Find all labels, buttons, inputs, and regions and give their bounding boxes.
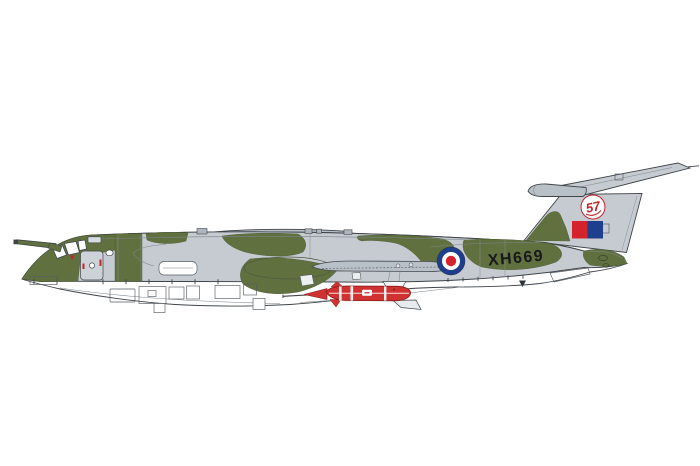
tailplane-tip-probe [688,166,699,167]
flap-fairing-2 [352,273,361,280]
open-hatch-1 [154,304,165,313]
wing-sliver [312,261,453,272]
wing-fuel-cap-2 [409,263,413,267]
refuelling-probe [14,240,63,252]
door-stencil-1 [83,264,85,270]
door-stencil-2 [100,260,102,267]
side-porthole [106,250,113,256]
door-porthole [89,263,94,268]
tail-assembly: 57 [524,163,699,253]
illustration-canvas: 57 [0,0,700,466]
roof-hatch [88,237,101,243]
aircraft-profile-illustration: 57 [0,0,700,466]
wing-fuel-cap-1 [396,264,400,268]
flap-fairing-1 [300,275,314,287]
windscreen-window-3 [78,240,87,251]
fin-flash-blue [588,221,604,239]
open-hatch-2 [253,299,265,310]
fuselage-roundel [437,247,465,275]
missile-strake-lower [330,300,341,308]
roundel-red-centre [446,256,456,266]
tailplane-elevator-line [566,168,672,191]
fin-flash-red [572,221,588,239]
missile-rear-fin [393,300,421,310]
camo-band [115,234,142,281]
missile-port [393,289,395,291]
probe-tip [14,240,19,245]
